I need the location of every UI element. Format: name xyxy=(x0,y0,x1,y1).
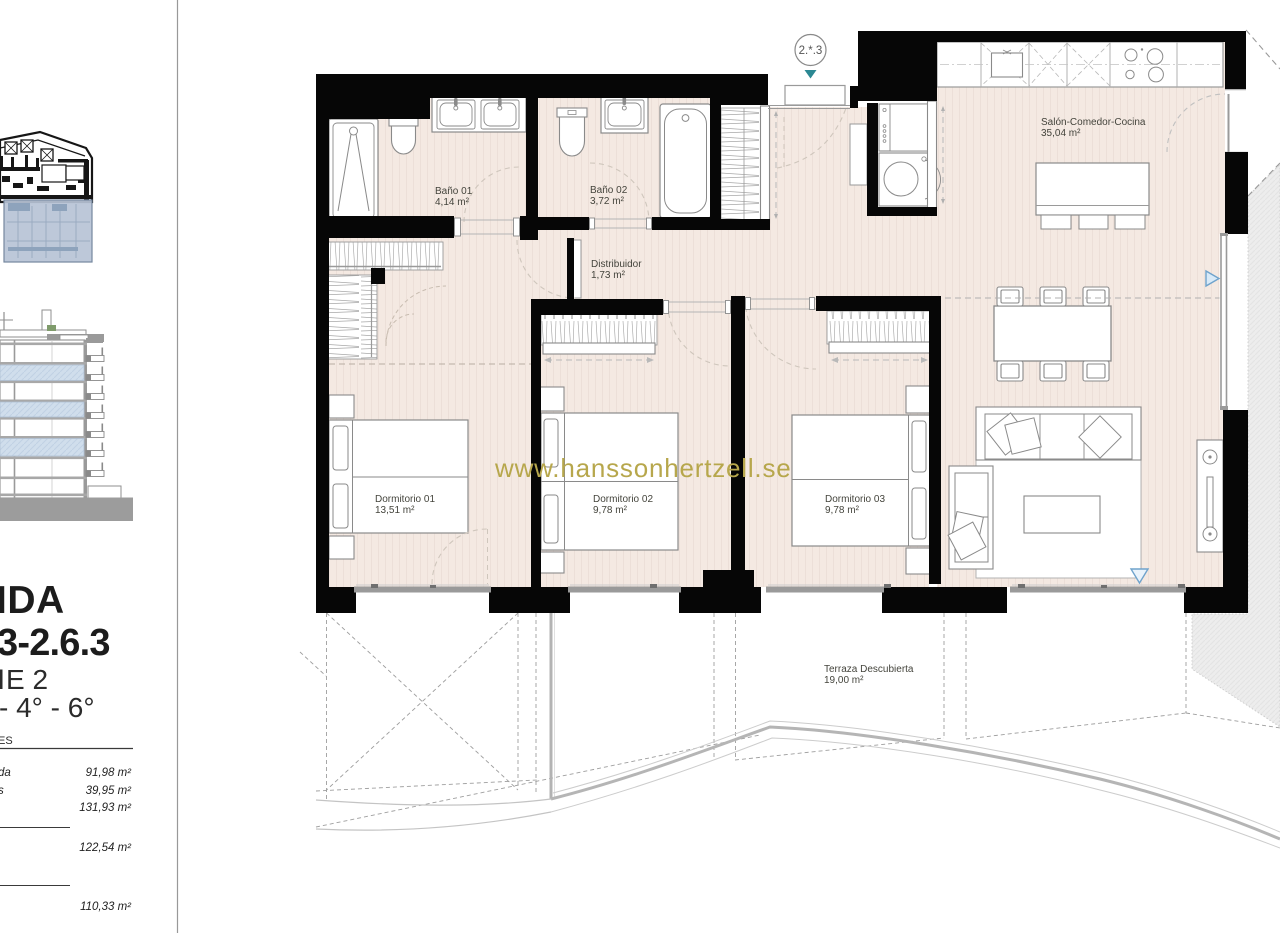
svg-text:Dormitorio 03: Dormitorio 03 xyxy=(825,494,885,505)
svg-text:Baño 02: Baño 02 xyxy=(590,185,628,196)
svg-text:IDA: IDA xyxy=(0,579,65,622)
svg-text:Terraza Descubierta: Terraza Descubierta xyxy=(824,664,914,675)
svg-text:91,98 m²: 91,98 m² xyxy=(86,767,133,779)
svg-text:Salón-Comedor-Cocina: Salón-Comedor-Cocina xyxy=(1041,117,1146,128)
svg-text:4,14 m²: 4,14 m² xyxy=(435,197,470,208)
svg-text:39,95 m²: 39,95 m² xyxy=(86,785,133,797)
svg-text:Dormitorio 02: Dormitorio 02 xyxy=(593,494,653,505)
svg-text:131,93 m²: 131,93 m² xyxy=(79,802,132,814)
svg-text:122,54 m²: 122,54 m² xyxy=(79,842,132,854)
svg-text:1,73 m²: 1,73 m² xyxy=(591,270,626,281)
svg-text:3-2.6.3: 3-2.6.3 xyxy=(0,622,110,664)
svg-text:2.*.3: 2.*.3 xyxy=(799,45,823,57)
svg-text:www.hanssonhertzell.se: www.hanssonhertzell.se xyxy=(494,453,792,483)
svg-text:s: s xyxy=(0,785,4,797)
svg-text:3,72 m²: 3,72 m² xyxy=(590,196,625,207)
svg-text:- 4° - 6°: - 4° - 6° xyxy=(0,692,95,723)
svg-text:35,04 m²: 35,04 m² xyxy=(1041,128,1081,139)
svg-text:9,78 m²: 9,78 m² xyxy=(825,505,860,516)
svg-text:Baño 01: Baño 01 xyxy=(435,186,473,197)
svg-text:19,00 m²: 19,00 m² xyxy=(824,675,864,686)
svg-text:13,51 m²: 13,51 m² xyxy=(375,505,415,516)
svg-text:E 2: E 2 xyxy=(6,664,48,695)
svg-text:9,78 m²: 9,78 m² xyxy=(593,505,628,516)
svg-text:Distribuidor: Distribuidor xyxy=(591,259,642,270)
svg-text:da: da xyxy=(0,767,11,779)
svg-text:Dormitorio 01: Dormitorio 01 xyxy=(375,494,435,505)
svg-text:110,33 m²: 110,33 m² xyxy=(80,901,132,913)
svg-text:ES: ES xyxy=(0,735,13,747)
